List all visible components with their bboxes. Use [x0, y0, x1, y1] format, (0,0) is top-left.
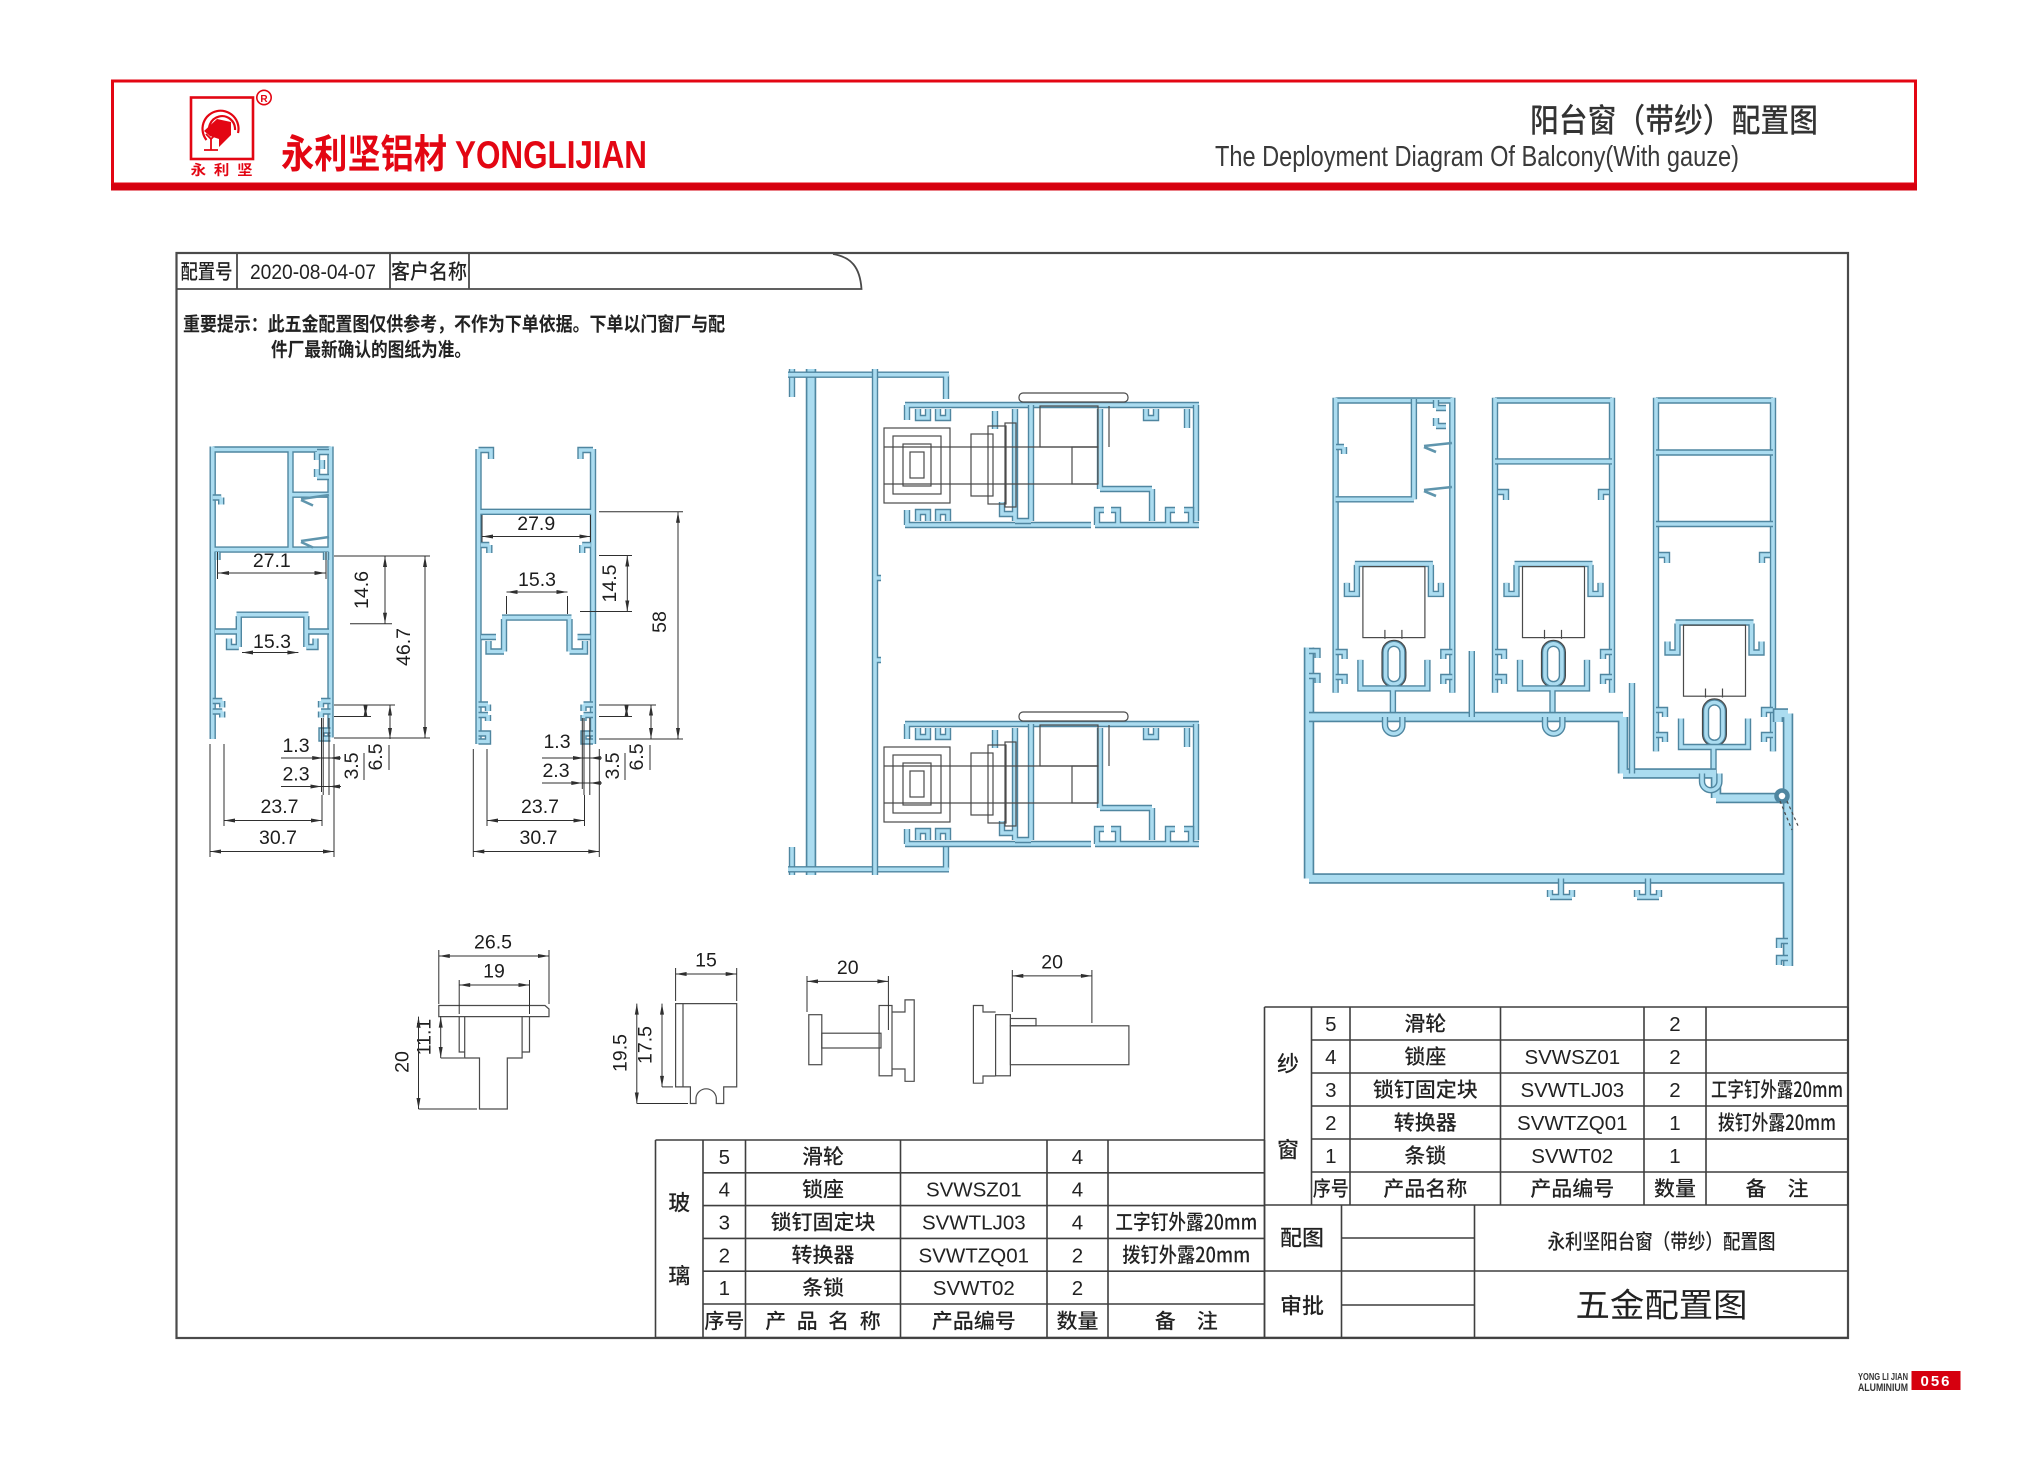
- svg-text:SVWTZQ01: SVWTZQ01: [1517, 1112, 1628, 1135]
- svg-text:20: 20: [837, 957, 859, 979]
- svg-text:46.7: 46.7: [393, 628, 415, 666]
- svg-text:3.5: 3.5: [602, 752, 624, 779]
- svg-text:2: 2: [1072, 1244, 1083, 1267]
- svg-text:30.7: 30.7: [520, 827, 558, 849]
- svg-text:15: 15: [695, 950, 717, 972]
- svg-text:2: 2: [1072, 1277, 1083, 1300]
- svg-text:SVWSZ01: SVWSZ01: [1524, 1046, 1620, 1069]
- svg-text:056: 056: [1920, 1373, 1951, 1390]
- svg-text:1.3: 1.3: [282, 735, 309, 757]
- svg-text:5: 5: [719, 1146, 730, 1169]
- svg-text:27.9: 27.9: [517, 513, 555, 535]
- svg-text:1: 1: [1669, 1145, 1680, 1168]
- svg-text:SVWTZQ01: SVWTZQ01: [919, 1244, 1030, 1267]
- svg-text:26.5: 26.5: [474, 932, 512, 954]
- svg-text:3: 3: [1325, 1079, 1336, 1102]
- svg-text:20: 20: [1041, 951, 1063, 973]
- svg-text:SVWTLJ03: SVWTLJ03: [1520, 1079, 1624, 1102]
- svg-text:2: 2: [1669, 1079, 1680, 1102]
- svg-text:1.3: 1.3: [543, 731, 570, 753]
- svg-text:The Deployment Diagram Of Balc: The Deployment Diagram Of Balcony(With g…: [1215, 141, 1739, 173]
- svg-text:4: 4: [1325, 1046, 1336, 1069]
- svg-text:YONGLIJIAN: YONGLIJIAN: [455, 134, 647, 177]
- svg-text:27.1: 27.1: [253, 550, 291, 572]
- svg-text:5: 5: [1325, 1013, 1336, 1036]
- svg-text:14.6: 14.6: [351, 571, 373, 609]
- svg-text:SVWSZ01: SVWSZ01: [926, 1179, 1022, 1202]
- svg-text:R: R: [260, 94, 268, 105]
- svg-text:ALUMINIUM: ALUMINIUM: [1858, 1382, 1908, 1394]
- svg-text:23.7: 23.7: [521, 796, 559, 818]
- svg-text:30.7: 30.7: [259, 827, 297, 849]
- svg-text:2020-08-04-07: 2020-08-04-07: [250, 261, 376, 284]
- svg-text:15.3: 15.3: [253, 631, 291, 653]
- svg-text:6.5: 6.5: [365, 743, 387, 770]
- svg-text:4: 4: [719, 1179, 730, 1202]
- svg-text:1: 1: [1325, 1145, 1336, 1168]
- svg-text:11.1: 11.1: [414, 1019, 436, 1056]
- svg-text:SVWT02: SVWT02: [1531, 1145, 1613, 1168]
- svg-text:19: 19: [483, 961, 505, 983]
- svg-text:15.3: 15.3: [518, 569, 556, 591]
- svg-text:20: 20: [392, 1051, 414, 1073]
- svg-text:2: 2: [719, 1244, 730, 1267]
- svg-text:2.3: 2.3: [542, 760, 569, 782]
- svg-text:58: 58: [649, 611, 671, 633]
- svg-text:SVWTLJ03: SVWTLJ03: [922, 1212, 1026, 1235]
- svg-text:4: 4: [1072, 1179, 1083, 1202]
- svg-text:14.5: 14.5: [599, 564, 621, 602]
- svg-text:SVWT02: SVWT02: [933, 1277, 1015, 1300]
- svg-text:4: 4: [1072, 1212, 1083, 1235]
- svg-text:23.7: 23.7: [261, 796, 299, 818]
- svg-text:2: 2: [1669, 1013, 1680, 1036]
- svg-text:1: 1: [719, 1277, 730, 1300]
- svg-text:1: 1: [1669, 1112, 1680, 1135]
- svg-text:19.5: 19.5: [609, 1034, 631, 1072]
- svg-text:6.5: 6.5: [626, 743, 648, 770]
- svg-text:2.3: 2.3: [282, 764, 309, 786]
- svg-text:3.5: 3.5: [341, 752, 363, 779]
- svg-text:17.5: 17.5: [635, 1026, 657, 1064]
- svg-text:2: 2: [1325, 1112, 1336, 1135]
- svg-text:3: 3: [719, 1212, 730, 1235]
- svg-text:4: 4: [1072, 1146, 1083, 1169]
- svg-text:2: 2: [1669, 1046, 1680, 1069]
